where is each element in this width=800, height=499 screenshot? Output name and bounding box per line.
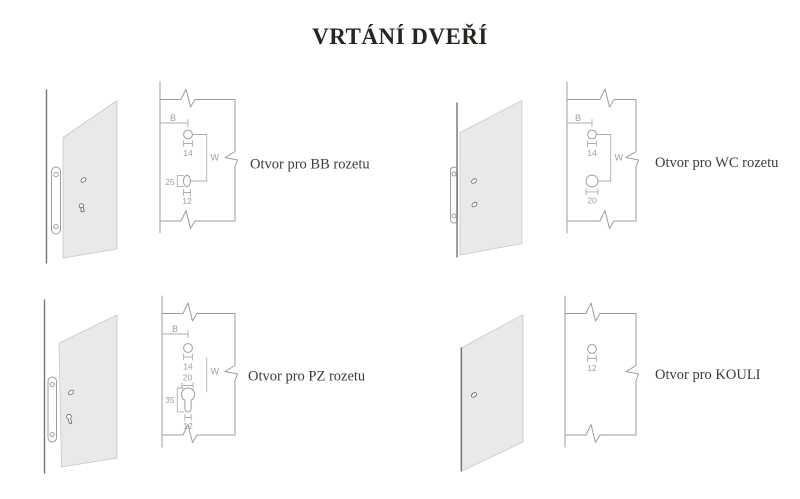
pz-label: Otvor pro PZ rozetu: [248, 369, 365, 385]
wc-dim-14-bracket: [588, 141, 597, 147]
diagram-bb: B 14 W 25 12 Otvor pro BB rozetu: [47, 82, 370, 263]
kouli-door-panel: [462, 315, 523, 472]
bb-plate-right-break: [225, 100, 238, 222]
bb-key-slot: [184, 175, 191, 186]
kouli-door-illustration: [461, 315, 523, 472]
pz-technical-drawing: B 14 20 W 35 12: [162, 296, 238, 447]
pz-door-panel: [59, 315, 117, 467]
wc-door-panel: [460, 101, 522, 256]
bb-faceplate-screw-top: [54, 172, 58, 176]
bb-dim-b-label: B: [170, 113, 176, 123]
wc-dim-w-line: [596, 135, 610, 182]
bb-dim-12-label: 12: [182, 196, 192, 206]
diagram-wc: B 14 W 20 Otvor pro WC rozetu: [451, 82, 779, 257]
wc-plate-right-break: [626, 100, 639, 222]
bb-door-illustration: [47, 90, 118, 263]
wc-wc-hole: [586, 175, 598, 187]
wc-dim-w-label: W: [615, 153, 624, 163]
wc-plate-bottom-break: [567, 211, 636, 229]
bb-plate-bottom-break: [160, 211, 235, 229]
pz-faceplate-screw-bottom: [50, 432, 54, 436]
pz-dim-12-bracket: [185, 415, 191, 421]
pz-dim-35-label: 35: [165, 395, 175, 405]
pz-dim-w-label: W: [211, 367, 220, 377]
bb-door-panel: [63, 101, 117, 259]
wc-dim-b-label: B: [575, 113, 581, 123]
pz-dim-14-label: 14: [183, 362, 193, 372]
bb-handle-hole: [184, 130, 193, 139]
bb-dim-14-label: 14: [183, 148, 193, 158]
vrtani-dveri-page: VRTÁNÍ DVEŘÍ B 14 W: [0, 0, 800, 499]
kouli-label: Otvor pro KOULI: [655, 367, 761, 383]
diagram-kouli: 12 Otvor pro KOULI: [461, 296, 760, 471]
bb-technical-drawing: B 14 W 25 12: [160, 82, 238, 233]
wc-technical-drawing: B 14 W 20: [567, 82, 639, 233]
pz-faceplate-screw-top: [50, 382, 54, 386]
bb-dim-14-bracket: [184, 141, 193, 147]
wc-label: Otvor pro WC rozetu: [655, 155, 778, 171]
wc-dim-20-bracket: [586, 189, 598, 195]
kouli-dim-12-label: 12: [587, 363, 597, 373]
pz-cylinder-slot: [181, 388, 194, 412]
bb-dim-25-label: 25: [165, 177, 175, 187]
diagram-canvas: VRTÁNÍ DVEŘÍ B 14 W: [0, 0, 800, 499]
wc-faceplate-screw-top: [452, 172, 456, 176]
bb-dim-w-line: [191, 135, 207, 182]
kouli-plate-bottom-break: [565, 425, 636, 443]
bb-dim-12-bracket: [184, 190, 191, 196]
wc-faceplate-screw-bottom: [452, 214, 456, 218]
pz-handle-hole: [184, 344, 193, 353]
kouli-dim-12-bracket: [588, 356, 597, 362]
bb-dim-w-label: W: [211, 153, 220, 163]
kouli-knob-hole: [588, 345, 597, 354]
wc-plate-top-break: [567, 89, 636, 107]
pz-dim-20-label: 20: [183, 373, 193, 383]
wc-door-illustration: [451, 101, 523, 258]
pz-dim-b-label: B: [172, 324, 178, 334]
pz-plate-top-break: [162, 303, 235, 321]
bb-label: Otvor pro BB rozetu: [250, 157, 370, 173]
pz-dim-14-bracket: [184, 354, 193, 360]
pz-dim-12-label: 12: [183, 421, 193, 431]
wc-dim-20-label: 20: [587, 196, 597, 206]
pz-plate-right-break: [225, 314, 238, 436]
kouli-plate-top-break: [565, 303, 636, 321]
pz-door-illustration: [45, 300, 118, 473]
diagram-pz: B 14 20 W 35 12 Otvor pro PZ rozetu: [45, 296, 366, 473]
bb-faceplate-screw-bottom: [54, 224, 58, 228]
kouli-technical-drawing: 12: [565, 296, 639, 447]
wc-handle-hole: [588, 130, 597, 139]
kouli-plate-right-break: [626, 314, 639, 436]
bb-dim-25-bracket: [177, 175, 183, 186]
bb-plate-top-break: [160, 89, 235, 107]
pz-plate-bottom-break: [162, 425, 235, 443]
wc-dim-14-label: 14: [587, 148, 597, 158]
page-title: VRTÁNÍ DVEŘÍ: [312, 23, 488, 49]
